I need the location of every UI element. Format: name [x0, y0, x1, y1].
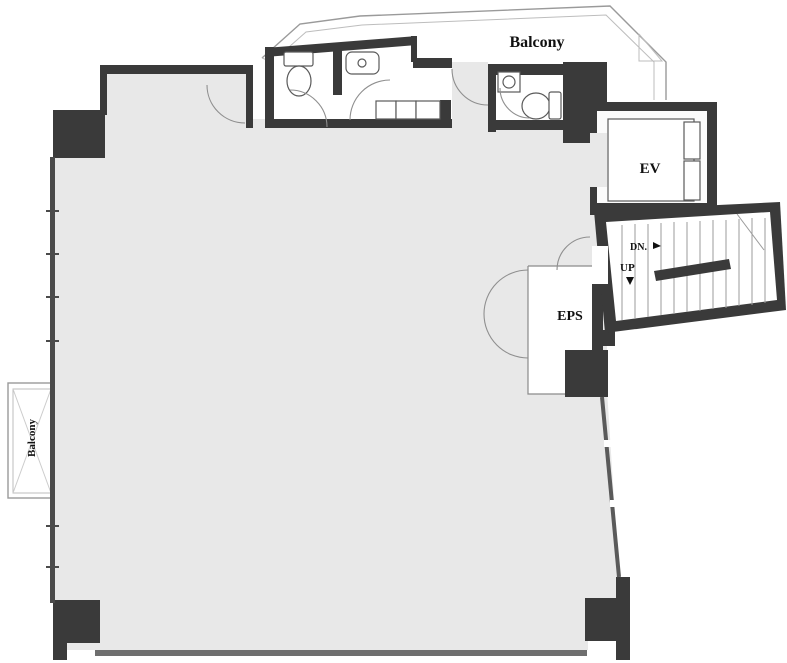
- ev-right-wall: [707, 102, 717, 213]
- sink2-drain: [503, 76, 515, 88]
- wc1-left-wall: [265, 47, 274, 128]
- wc1-washroom-partition: [333, 44, 342, 95]
- elevator-door-opening: [590, 133, 607, 187]
- floor-plan-drawing: Balcony EV DN. UP EPS Balcony: [0, 0, 787, 663]
- stairs-up-label: UP: [620, 262, 635, 274]
- bottom-right-column: [585, 598, 630, 641]
- bath-bottom-wall: [265, 119, 452, 128]
- top-left-column: [53, 110, 105, 158]
- right-wall-window-gap-2: [610, 500, 617, 507]
- stairwell-entry-opening: [592, 246, 608, 284]
- elevator-rail-bottom: [684, 161, 700, 200]
- elevator: [590, 102, 717, 213]
- elevator-rail-top: [684, 122, 700, 159]
- toilet2-bowl: [522, 93, 550, 119]
- top-balcony-corner-brace: [639, 34, 662, 61]
- eps-bottom-block: [565, 350, 608, 397]
- right-wall-window-gap-1: [604, 440, 611, 447]
- sink1-drain: [358, 59, 366, 67]
- bottom-right-notch: [588, 641, 616, 660]
- counter-cell-3: [416, 101, 440, 119]
- toilet2-tank: [549, 92, 561, 119]
- elevator-label: EV: [640, 161, 661, 177]
- bottom-wall: [95, 650, 587, 656]
- toilet1-tank: [284, 52, 313, 66]
- top-balcony-label: Balcony: [509, 34, 564, 51]
- counter-cell-2: [396, 101, 416, 119]
- ev-top-wall: [597, 102, 717, 111]
- bottom-left-column: [53, 600, 100, 643]
- bottom-left-column-foot: [53, 643, 67, 660]
- corridor-top-wall: [413, 58, 452, 68]
- counter-cell-1: [376, 101, 396, 119]
- stair-corner-block: [593, 330, 615, 346]
- top-wall: [100, 65, 252, 74]
- left-window-wall: [50, 157, 55, 603]
- elevator-car: [608, 119, 694, 201]
- counter-end-wall: [440, 100, 451, 128]
- floor-plan-page: Balcony EV DN. UP EPS Balcony: [0, 0, 787, 663]
- left-balcony-label: Balcony: [26, 419, 38, 457]
- entry-partition-wall: [246, 65, 253, 128]
- eps-label: EPS: [557, 309, 583, 324]
- top-left-wall-stub: [100, 65, 107, 115]
- ev-bottom-wall: [597, 203, 717, 213]
- stairs-down-label: DN.: [630, 242, 647, 253]
